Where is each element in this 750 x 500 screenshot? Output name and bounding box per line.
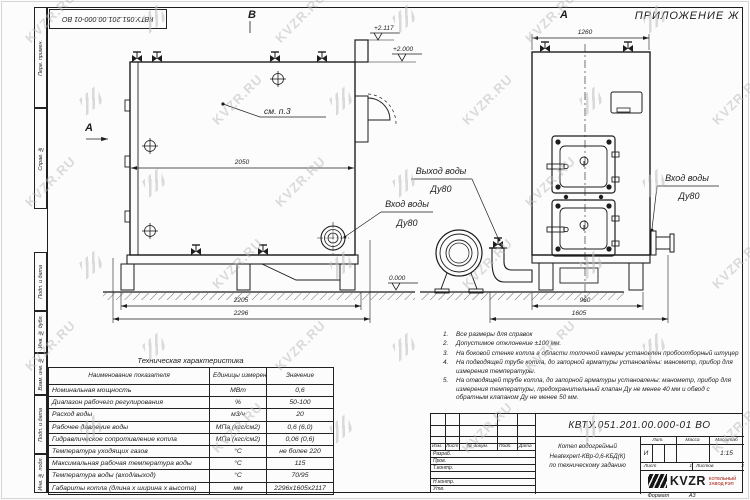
note-item: 4.На подводящей трубе котла, до запорной… — [443, 359, 741, 376]
col-date: Дата — [519, 444, 532, 449]
sheets-cell: Листов 2 — [694, 462, 746, 470]
ground-line-right — [420, 292, 624, 300]
tech-table-row: Диапазон рабочего регулирования%50-100 — [49, 397, 334, 409]
notes-list: 1.Все размеры для справок2.Допустимое от… — [443, 331, 741, 404]
dim-side-total: 2296 — [233, 310, 249, 317]
section-mark-b: В — [248, 9, 256, 21]
tech-table-row: Гидравлическое сопротивление котлаМПа (к… — [49, 433, 334, 445]
kvzr-logo-text: KVZR — [670, 474, 706, 488]
fan-blower — [435, 230, 483, 293]
valve-icon — [540, 42, 550, 52]
product-name: Котел водогрейный Heatexpert-КВр-0,6-КБД… — [535, 436, 640, 494]
title-block: Изм. Лист № докум. Подп. Дата Разраб. Пр… — [430, 413, 743, 493]
appendix-label: ПРИЛОЖЕНИЕ Ж — [635, 10, 740, 22]
tech-table-row: Рабочее давление водыМПа (кгс/см2)0,6 (6… — [49, 421, 334, 433]
tech-table-header: Наименование показателя Единицы измерени… — [49, 368, 334, 385]
elevation-marks — [355, 33, 422, 290]
view-mark-a: А — [559, 9, 568, 21]
kvzr-logo-subtitle: КОТЕЛЬНЫЙ ЗАВОД РЭП — [709, 476, 736, 486]
valve-icon — [317, 52, 327, 62]
note-item: 2.Допустимое отклонение ±100 мм. — [443, 340, 741, 348]
dim-front-total: 1605 — [572, 310, 587, 317]
tech-table-row: Габариты котла (длина х ширина х высота)… — [49, 482, 334, 494]
boiler-side-view — [121, 40, 396, 290]
tech-table-title: Техническая характеристика — [48, 356, 333, 367]
water-inlet-flange-front — [651, 231, 674, 255]
valve-icon — [152, 52, 162, 62]
lifting-point-marks — [142, 71, 286, 239]
elevation-ground: 0.000 — [389, 275, 406, 282]
section-mark-a: А — [84, 122, 93, 134]
tech-table-row: Максимальная рабочая температура воды°С1… — [49, 458, 334, 470]
valve-icon — [623, 42, 633, 52]
dim-front-top: 1260 — [578, 29, 593, 36]
col-izm: Изм. — [432, 444, 442, 449]
sheet-cell: Лист 1 — [642, 462, 694, 470]
col-list: Лист — [446, 444, 458, 449]
scale-value: 1:15 — [709, 444, 744, 462]
role-prov: Пров. — [433, 458, 446, 464]
lit-label: Лит. — [640, 436, 676, 444]
company-logo: KVZR КОТЕЛЬНЫЙ ЗАВОД РЭП — [642, 470, 742, 492]
elevation-chimney: +2.117 — [374, 25, 394, 32]
role-razrab: Разраб. — [433, 451, 451, 457]
svg-text:Ду80: Ду80 — [678, 191, 700, 201]
kvzr-logo-icon — [648, 474, 667, 488]
note-item: 5.На отводящей трубе котла, до запорной … — [443, 377, 741, 402]
rotated-doc-number-box: КВТУ.051.201.00.000-01 ВО — [49, 9, 167, 29]
svg-text:Ду80: Ду80 — [396, 218, 418, 228]
svg-text:Ду80: Ду80 — [430, 184, 452, 194]
col-sign: Подп. — [499, 444, 512, 449]
scale-label: Масштаб — [709, 436, 744, 444]
dim-front-base: 960 — [580, 297, 591, 304]
tech-table-row: Температура воды (вход/выход)°С70/95 — [49, 470, 334, 482]
tech-table: Техническая характеристика Наименование … — [48, 356, 333, 495]
elevation-boiler-top: +2.000 — [393, 46, 413, 53]
role-nkontr: Н.контр. — [433, 479, 454, 485]
control-panel — [611, 92, 642, 113]
burner-elbow-pipe — [489, 248, 532, 282]
door-bolts — [555, 139, 611, 251]
see-note-label: см. п.3 — [264, 106, 291, 116]
role-tkontr: Т.контр. — [433, 465, 453, 471]
lit-value: И — [640, 444, 652, 462]
valve-icon — [191, 245, 201, 255]
mass-label: Масса — [676, 436, 709, 444]
inlet-side-label: Вход воды Ду80 — [344, 199, 433, 238]
inlet-front-label: Вход воды Ду80 — [651, 173, 719, 231]
dim-side-width: 2050 — [234, 159, 250, 166]
valve-icon — [270, 52, 280, 62]
svg-text:Выход воды: Выход воды — [416, 166, 467, 176]
note-item: 3.На боковой стенке котла в области топо… — [443, 350, 741, 358]
drawing-sheet: Перв. примен. Справ. № Подп. и дата Инв.… — [0, 0, 750, 500]
svg-text:Вход воды: Вход воды — [665, 173, 709, 183]
note-item: 1.Все размеры для справок — [443, 331, 741, 339]
valve-icon — [258, 245, 268, 255]
tech-table-row: Расход водым3/ч20 — [49, 409, 334, 421]
svg-text:Вход воды: Вход воды — [385, 199, 429, 209]
title-block-doc-number: КВТУ.051.201.00.000-01 ВО — [535, 414, 744, 436]
ground-line-left — [103, 292, 415, 300]
tech-table-row: Номинальная мощностьМВт0,6 — [49, 385, 334, 397]
col-doc: № докум. — [467, 444, 488, 449]
format-label: Формат А3 — [600, 493, 743, 499]
role-utv: Утв. — [433, 486, 444, 492]
rotated-doc-number: КВТУ.051.201.00.000-01 ВО — [62, 15, 154, 24]
valve-icon — [132, 52, 142, 62]
boiler-front-view — [532, 42, 674, 302]
tech-table-row: Температура уходящих газов°Сне более 220 — [49, 445, 334, 457]
dim-side-base: 2205 — [233, 297, 249, 304]
